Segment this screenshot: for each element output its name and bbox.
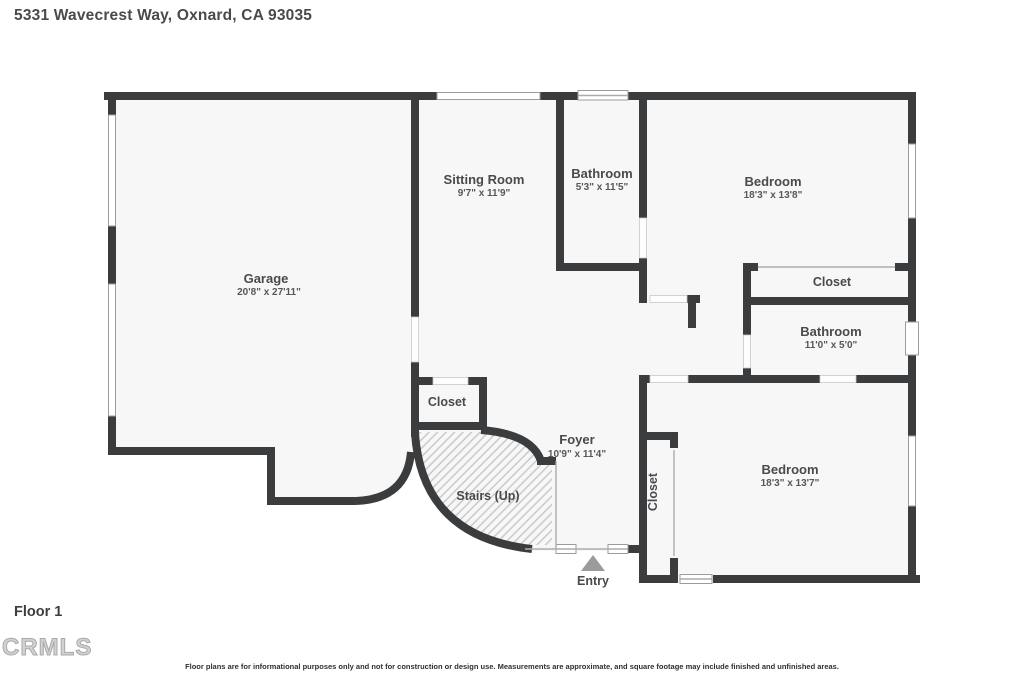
svg-text:Bathroom: Bathroom xyxy=(800,324,861,339)
disclaimer-text: Floor plans are for informational purpos… xyxy=(0,662,1024,671)
room-label-closet-upper: Closet xyxy=(813,275,852,289)
room-label-bedroom-lower: Bedroom 18'3" x 13'7" xyxy=(761,462,820,489)
svg-text:20'8" x 27'11": 20'8" x 27'11" xyxy=(237,287,301,298)
svg-text:Closet: Closet xyxy=(428,395,467,409)
svg-text:Closet: Closet xyxy=(646,472,660,511)
svg-text:9'7" x 11'9": 9'7" x 11'9" xyxy=(458,188,511,199)
room-label-closet-foyer: Closet xyxy=(428,395,467,409)
svg-text:18'3" x 13'8": 18'3" x 13'8" xyxy=(744,190,803,201)
svg-text:Bedroom: Bedroom xyxy=(744,174,801,189)
svg-text:Entry: Entry xyxy=(577,574,609,588)
svg-text:5'3" x 11'5": 5'3" x 11'5" xyxy=(576,182,629,193)
room-label-stairs: Stairs (Up) xyxy=(456,489,519,503)
svg-text:Bedroom: Bedroom xyxy=(761,462,818,477)
room-label-bedroom-upper: Bedroom 18'3" x 13'8" xyxy=(744,174,803,201)
svg-text:11'0" x 5'0": 11'0" x 5'0" xyxy=(805,340,858,351)
svg-text:Sitting Room: Sitting Room xyxy=(444,172,525,187)
svg-text:10'9" x 11'4": 10'9" x 11'4" xyxy=(548,449,606,460)
floor-plan-diagram: Garage 20'8" x 27'11" Sitting Room 9'7" … xyxy=(0,0,1024,683)
entry-arrow-icon xyxy=(581,555,605,571)
svg-text:Foyer: Foyer xyxy=(559,432,594,447)
svg-text:Closet: Closet xyxy=(813,275,852,289)
svg-text:18'3" x 13'7": 18'3" x 13'7" xyxy=(761,478,820,489)
room-label-bathroom-hall: Bathroom 11'0" x 5'0" xyxy=(800,324,861,351)
room-label-closet-bedroom: Closet xyxy=(646,472,660,511)
svg-text:Stairs (Up): Stairs (Up) xyxy=(456,489,519,503)
svg-text:Bathroom: Bathroom xyxy=(571,166,632,181)
room-label-entry: Entry xyxy=(577,574,609,588)
room-label-bathroom-upper: Bathroom 5'3" x 11'5" xyxy=(571,166,632,193)
crmls-logo: CRMLS xyxy=(2,634,92,662)
floor-label: Floor 1 xyxy=(14,604,62,620)
svg-text:Garage: Garage xyxy=(244,271,289,286)
